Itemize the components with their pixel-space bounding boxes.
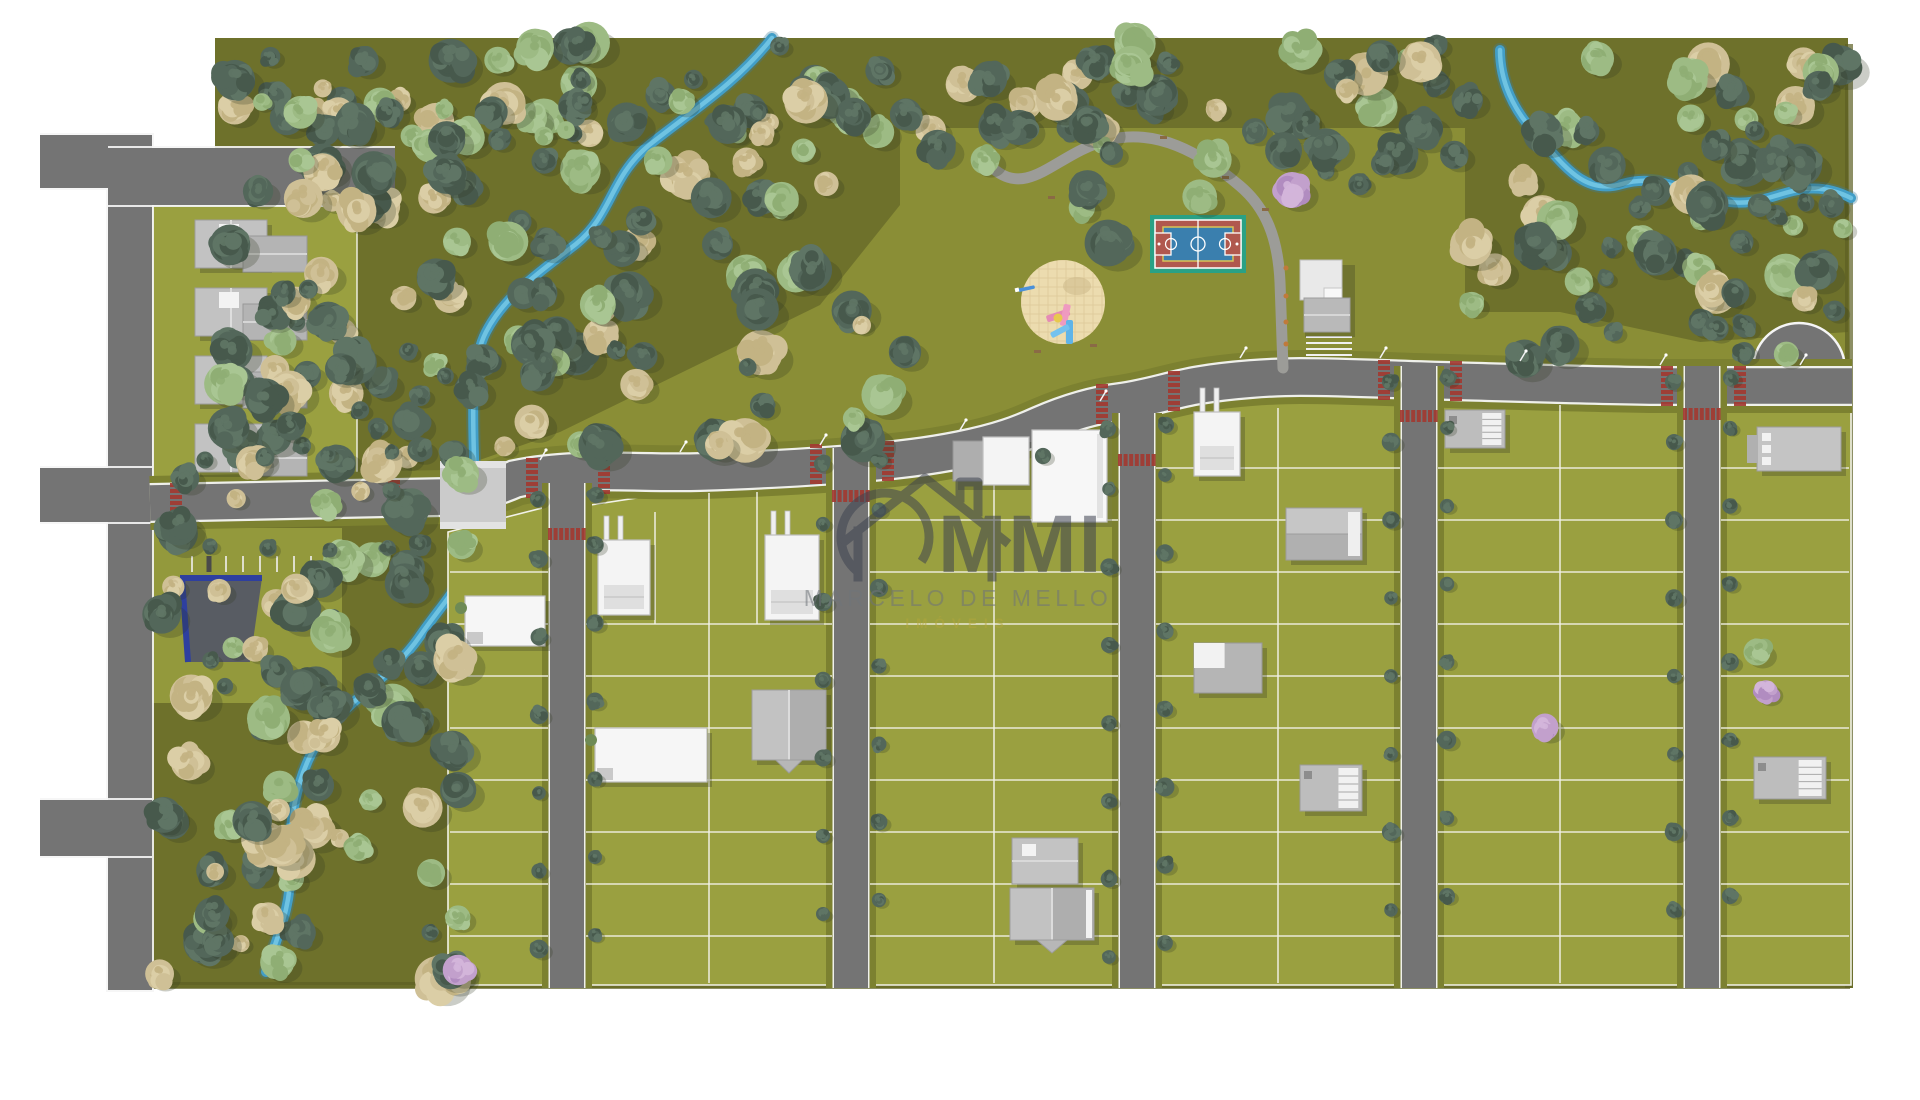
- canopy-highlight: [634, 215, 641, 222]
- roof-vent: [1304, 771, 1312, 779]
- canopy-highlight: [1703, 197, 1712, 206]
- crosswalk-stripe: [832, 490, 836, 502]
- crosswalk-stripe: [1705, 408, 1709, 420]
- canopy-highlight: [500, 228, 509, 237]
- skylight: [1762, 433, 1771, 441]
- house: [953, 437, 1034, 490]
- canopy-highlight: [286, 420, 292, 426]
- canopy-highlight: [466, 379, 474, 387]
- pergola-post: [604, 516, 609, 542]
- canopy-highlight: [411, 128, 416, 133]
- left-road: [108, 135, 152, 990]
- crosswalk-stripe: [1711, 408, 1715, 420]
- sand-shade: [1063, 277, 1091, 295]
- crosswalk-stripe: [1124, 454, 1128, 466]
- canopy-highlight: [442, 45, 452, 55]
- canopy-highlight: [430, 194, 437, 201]
- canopy-highlight: [325, 314, 334, 323]
- canopy-clump: [455, 47, 469, 61]
- canopy-highlight: [1587, 304, 1594, 311]
- canopy-highlight: [1253, 122, 1259, 128]
- crosswalk-stripe: [1378, 366, 1390, 370]
- canopy-highlight: [440, 105, 444, 109]
- canopy-highlight: [566, 99, 573, 106]
- crosswalk-stripe: [526, 458, 538, 462]
- canopy-highlight: [756, 297, 765, 306]
- canopy-highlight: [296, 107, 303, 114]
- parking-line: [259, 556, 261, 572]
- canopy-highlight: [299, 185, 308, 194]
- crosswalk-stripe: [1378, 396, 1390, 400]
- crosswalk-stripe: [1406, 410, 1410, 422]
- canopy-highlight: [306, 367, 312, 373]
- canopy-highlight: [541, 358, 546, 363]
- canopy-clump: [532, 294, 549, 311]
- canopy-highlight: [1074, 70, 1081, 77]
- crosswalk-stripe: [526, 476, 538, 480]
- canopy-highlight: [407, 131, 412, 136]
- crosswalk-stripe: [1661, 396, 1673, 400]
- crosswalk-stripe: [1450, 367, 1462, 371]
- crosswalk-stripe: [1434, 410, 1438, 422]
- canopy-highlight: [823, 179, 828, 184]
- canopy-highlight: [577, 98, 582, 103]
- canopy-highlight: [853, 103, 861, 111]
- road-stub: [40, 800, 152, 856]
- canopy-highlight: [1737, 155, 1747, 165]
- crosswalk-stripe: [1118, 454, 1122, 466]
- canopy-highlight: [1377, 51, 1384, 58]
- canopy-highlight: [453, 444, 460, 451]
- canopy-clump: [1424, 60, 1440, 76]
- basketball-court: [1150, 215, 1246, 273]
- canopy-clump: [1089, 61, 1105, 77]
- canopy-highlight: [845, 109, 853, 117]
- play-hub: [1054, 314, 1063, 323]
- canopy-highlight: [580, 155, 589, 164]
- parking-line: [293, 556, 295, 572]
- canopy-highlight: [270, 362, 276, 368]
- canopy-clump: [287, 199, 300, 212]
- crosswalk-stripe: [860, 490, 864, 502]
- canopy-highlight: [369, 168, 379, 178]
- canopy-highlight: [255, 187, 262, 194]
- canopy-highlight: [613, 347, 617, 351]
- canopy-highlight: [876, 67, 882, 73]
- canopy-highlight: [282, 285, 287, 290]
- bench: [1090, 344, 1097, 347]
- crosswalk-stripe: [598, 478, 610, 482]
- canopy-highlight: [721, 111, 730, 120]
- canopy-highlight: [741, 262, 750, 271]
- canopy-highlight: [216, 376, 225, 385]
- canopy-highlight: [1608, 240, 1612, 244]
- canopy-highlight: [958, 72, 966, 80]
- crosswalk: [548, 528, 586, 540]
- crosswalk-stripe: [1700, 408, 1704, 420]
- white-trim: [1086, 890, 1092, 938]
- canopy-highlight: [659, 90, 666, 97]
- canopy-highlight: [567, 159, 576, 168]
- canopy-highlight: [498, 440, 502, 444]
- pergola-post: [785, 511, 790, 537]
- street: [1685, 366, 1719, 988]
- canopy-clump: [1840, 50, 1861, 71]
- canopy-clump: [444, 239, 455, 250]
- canopy-highlight: [673, 96, 679, 102]
- white-section: [1194, 643, 1225, 668]
- parking-line: [1306, 348, 1352, 350]
- canopy-highlight: [738, 155, 744, 161]
- crosswalk-stripe: [1140, 454, 1144, 466]
- canopy-highlight: [746, 300, 755, 309]
- crosswalk-stripe: [1661, 402, 1673, 406]
- canopy-highlight: [544, 235, 551, 242]
- canopy-highlight: [1135, 30, 1144, 39]
- canopy-highlight: [269, 309, 276, 316]
- canopy-highlight: [347, 110, 356, 119]
- canopy-highlight: [269, 87, 275, 93]
- crosswalk-stripe: [1450, 361, 1462, 365]
- bench: [1262, 208, 1269, 211]
- canopy-highlight: [318, 262, 326, 270]
- crosswalk-stripe: [1168, 401, 1180, 405]
- crosswalk-stripe: [1096, 402, 1108, 406]
- crosswalk-stripe: [526, 482, 538, 486]
- canopy-highlight: [268, 52, 272, 56]
- canopy-highlight: [355, 405, 359, 409]
- canopy-highlight: [527, 339, 536, 348]
- canopy-clump: [1130, 63, 1154, 87]
- street: [1120, 413, 1154, 988]
- crosswalk-stripe: [866, 490, 870, 502]
- crosswalk-stripe: [854, 490, 858, 502]
- crosswalk-stripe: [582, 528, 586, 540]
- skylight: [1762, 457, 1771, 465]
- canopy-highlight: [374, 424, 378, 428]
- canopy-highlight: [297, 156, 302, 161]
- hoop: [1236, 243, 1239, 246]
- canopy-highlight: [930, 123, 936, 129]
- crosswalk-stripe: [1096, 384, 1108, 388]
- canopy-highlight: [679, 162, 689, 172]
- crosswalk-stripe: [1694, 408, 1698, 420]
- canopy-highlight: [1828, 202, 1834, 208]
- canopy-highlight: [780, 40, 784, 44]
- canopy-highlight: [757, 127, 762, 132]
- street: [1402, 366, 1436, 988]
- canopy-highlight: [1779, 106, 1784, 111]
- parking-line: [276, 556, 278, 572]
- flat-roof: [1032, 430, 1107, 522]
- skylight: [1762, 445, 1771, 453]
- canopy-highlight: [1362, 68, 1372, 78]
- canopy-highlight: [352, 201, 361, 210]
- canopy-highlight: [621, 282, 631, 292]
- crosswalk-stripe: [1096, 408, 1108, 412]
- crosswalk-stripe: [1168, 407, 1180, 411]
- crosswalk-stripe: [1417, 410, 1421, 422]
- canopy-highlight: [846, 305, 855, 314]
- canopy-highlight: [594, 230, 599, 235]
- canopy-highlight: [360, 53, 367, 60]
- slide-blue: [1066, 320, 1073, 344]
- canopy-highlight: [757, 336, 767, 346]
- crosswalk-stripe: [838, 490, 842, 502]
- canopy-highlight: [616, 242, 624, 250]
- stair-deck: [1338, 768, 1358, 808]
- crosswalk: [1168, 371, 1180, 411]
- canopy-highlight: [984, 71, 992, 79]
- crosswalk-stripe: [1734, 396, 1746, 400]
- crosswalk-stripe: [1168, 371, 1180, 375]
- crosswalk-stripe: [1152, 454, 1156, 466]
- crosswalk-stripe: [1411, 410, 1415, 422]
- canopy-clump: [645, 159, 661, 175]
- crosswalk-stripe: [849, 490, 853, 502]
- crosswalk-stripe: [548, 528, 552, 540]
- canopy-highlight: [430, 263, 439, 272]
- canopy-clump: [1608, 248, 1615, 255]
- crosswalk-stripe: [1734, 366, 1746, 370]
- canopy-highlight: [778, 194, 786, 202]
- canopy-highlight: [637, 348, 643, 354]
- canopy-clump: [685, 98, 695, 108]
- crosswalk-stripe: [1661, 390, 1673, 394]
- canopy-highlight: [1604, 158, 1612, 166]
- street: [834, 448, 868, 988]
- crosswalk-stripe: [1096, 414, 1108, 418]
- crosswalk: [832, 490, 870, 502]
- crosswalk-stripe: [1378, 360, 1390, 364]
- canopy-highlight: [1165, 61, 1170, 66]
- crosswalk-stripe: [1146, 454, 1150, 466]
- canopy-highlight: [654, 155, 660, 161]
- crosswalk-stripe: [1734, 402, 1746, 406]
- canopy-highlight: [519, 287, 526, 294]
- canopy-highlight: [402, 290, 407, 295]
- crosswalk: [1683, 408, 1721, 420]
- bollard: [1284, 342, 1289, 347]
- canopy-highlight: [496, 53, 502, 59]
- canopy-clump: [362, 406, 368, 412]
- stair-deck: [1482, 413, 1501, 445]
- flat-roof: [983, 437, 1029, 485]
- parking-line: [225, 556, 227, 572]
- crosswalk-stripe: [1734, 390, 1746, 394]
- crosswalk-stripe: [570, 528, 574, 540]
- house: [1010, 888, 1099, 953]
- canopy-highlight: [1811, 258, 1820, 267]
- canopy-highlight: [1155, 86, 1164, 95]
- canopy-highlight: [689, 74, 693, 78]
- pergola-post: [1214, 388, 1219, 414]
- canopy-highlight: [1045, 89, 1054, 98]
- canopy-clump: [327, 165, 343, 181]
- canopy-highlight: [1802, 198, 1806, 202]
- canopy-highlight: [1126, 32, 1135, 41]
- crosswalk-stripe: [1168, 377, 1180, 381]
- canopy-highlight: [299, 443, 303, 447]
- roof-vent: [1758, 763, 1766, 771]
- crosswalk-stripe: [882, 477, 894, 481]
- canopy-highlight: [321, 158, 329, 166]
- canopy-highlight: [1815, 59, 1823, 67]
- canopy-highlight: [540, 130, 544, 134]
- crosswalk-stripe: [810, 450, 822, 454]
- house: [1194, 643, 1267, 698]
- crosswalk-stripe: [170, 501, 182, 505]
- crosswalk-stripe: [1689, 408, 1693, 420]
- canopy-highlight: [578, 76, 582, 80]
- canopy-highlight: [752, 189, 760, 197]
- crosswalk: [1118, 454, 1156, 466]
- canopy-highlight: [1602, 273, 1606, 277]
- canopy-highlight: [431, 116, 439, 124]
- crosswalk-stripe: [1422, 410, 1426, 422]
- canopy-highlight: [572, 37, 579, 44]
- canopy-highlight: [256, 98, 260, 102]
- white-section: [1348, 512, 1360, 556]
- canopy-highlight: [777, 43, 781, 47]
- roof-strip: [1097, 434, 1103, 518]
- canopy-highlight: [1125, 89, 1131, 95]
- canopy-highlight: [1706, 284, 1713, 291]
- canopy-highlight: [444, 127, 452, 135]
- house: [1032, 430, 1112, 527]
- crosswalk-stripe: [170, 495, 182, 499]
- hoop: [1158, 243, 1161, 246]
- canopy-highlight: [216, 235, 225, 244]
- canopy-clump: [541, 361, 552, 372]
- canopy-clump: [1512, 182, 1527, 197]
- canopy-highlight: [640, 212, 647, 219]
- house: [1012, 838, 1083, 889]
- crosswalk-stripe: [1450, 391, 1462, 395]
- roof-left: [1010, 888, 1052, 940]
- canopy-highlight: [1434, 39, 1439, 44]
- canopy-highlight: [806, 265, 815, 274]
- canopy-highlight: [419, 443, 425, 449]
- crosswalk-stripe: [526, 470, 538, 474]
- crosswalk-stripe: [1717, 408, 1721, 420]
- crosswalk-stripe: [1428, 410, 1432, 422]
- canopy-highlight: [228, 346, 237, 355]
- canopy-highlight: [321, 126, 328, 133]
- canopy-highlight: [711, 238, 718, 245]
- canopy-clump: [751, 132, 765, 146]
- canopy-highlight: [1782, 268, 1792, 278]
- canopy-highlight: [860, 319, 864, 323]
- canopy-clump: [831, 82, 846, 97]
- canopy-clump: [273, 285, 281, 293]
- canopy-highlight: [1252, 127, 1258, 133]
- pergola-post: [771, 511, 776, 537]
- bollard: [1284, 294, 1289, 299]
- house: [1300, 765, 1367, 816]
- house: [1754, 757, 1831, 804]
- canopy-highlight: [1695, 260, 1702, 267]
- canopy-highlight: [264, 52, 268, 56]
- crosswalk-stripe: [1168, 389, 1180, 393]
- wing: [1747, 435, 1757, 463]
- canopy-highlight: [322, 82, 326, 86]
- canopy-highlight: [431, 359, 436, 364]
- canopy-clump: [342, 457, 355, 470]
- crosswalk-stripe: [882, 471, 894, 475]
- roof-left: [752, 690, 789, 760]
- canopy-clump: [598, 238, 609, 249]
- canopy-highlight: [1417, 50, 1426, 59]
- tree: [514, 29, 563, 72]
- canopy-highlight: [1702, 51, 1712, 61]
- bridge-rail: [440, 522, 506, 529]
- crosswalk-stripe: [1683, 408, 1687, 420]
- roof-right: [789, 690, 826, 760]
- crosswalk-stripe: [526, 464, 538, 468]
- canopy-highlight: [800, 146, 805, 151]
- canopy-highlight: [403, 413, 411, 421]
- house: [1747, 427, 1846, 476]
- canopy-clump: [491, 138, 503, 150]
- crosswalk-stripe: [810, 474, 822, 478]
- canopy-highlight: [442, 169, 451, 178]
- canopy-highlight: [372, 454, 381, 463]
- crosswalk-stripe: [576, 528, 580, 540]
- reserved-parking-marker: [207, 556, 212, 572]
- stair-deck: [1799, 760, 1822, 796]
- crosswalk-stripe: [1168, 395, 1180, 399]
- bollard: [1284, 266, 1289, 271]
- canopy-highlight: [744, 363, 748, 367]
- crosswalk-stripe: [810, 480, 822, 484]
- crosswalk-stripe: [1168, 383, 1180, 387]
- canopy-highlight: [1574, 277, 1580, 283]
- canopy-highlight: [300, 366, 306, 372]
- key-area: [1155, 233, 1171, 255]
- canopy-highlight: [622, 110, 631, 119]
- canopy-highlight: [277, 337, 283, 343]
- canopy-highlight: [1685, 167, 1690, 172]
- canopy-highlight: [1645, 184, 1652, 191]
- crosswalk-stripe: [559, 528, 563, 540]
- canopy-clump: [308, 309, 325, 326]
- key-area: [1225, 233, 1241, 255]
- hedge: [455, 602, 467, 614]
- canopy-highlight: [527, 415, 535, 423]
- canopy-highlight: [1680, 69, 1689, 78]
- street: [550, 483, 584, 988]
- canopy-highlight: [564, 127, 568, 131]
- crosswalk-stripe: [598, 484, 610, 488]
- canopy-highlight: [539, 288, 546, 295]
- canopy-highlight: [596, 331, 604, 339]
- canopy-highlight: [304, 285, 308, 289]
- canopy-highlight: [1342, 83, 1347, 88]
- canopy-highlight: [1090, 56, 1098, 64]
- canopy-highlight: [232, 69, 241, 78]
- crosswalk-stripe: [1661, 366, 1673, 370]
- canopy-highlight: [1020, 98, 1027, 105]
- skylight: [1022, 844, 1036, 856]
- canopy-highlight: [1120, 54, 1129, 63]
- crosswalk-stripe: [1400, 410, 1404, 422]
- canopy-highlight: [268, 426, 276, 434]
- crosswalk-stripe: [565, 528, 569, 540]
- parking-line: [1306, 354, 1352, 356]
- crosswalk-stripe: [598, 472, 610, 476]
- pergola-post: [618, 516, 623, 542]
